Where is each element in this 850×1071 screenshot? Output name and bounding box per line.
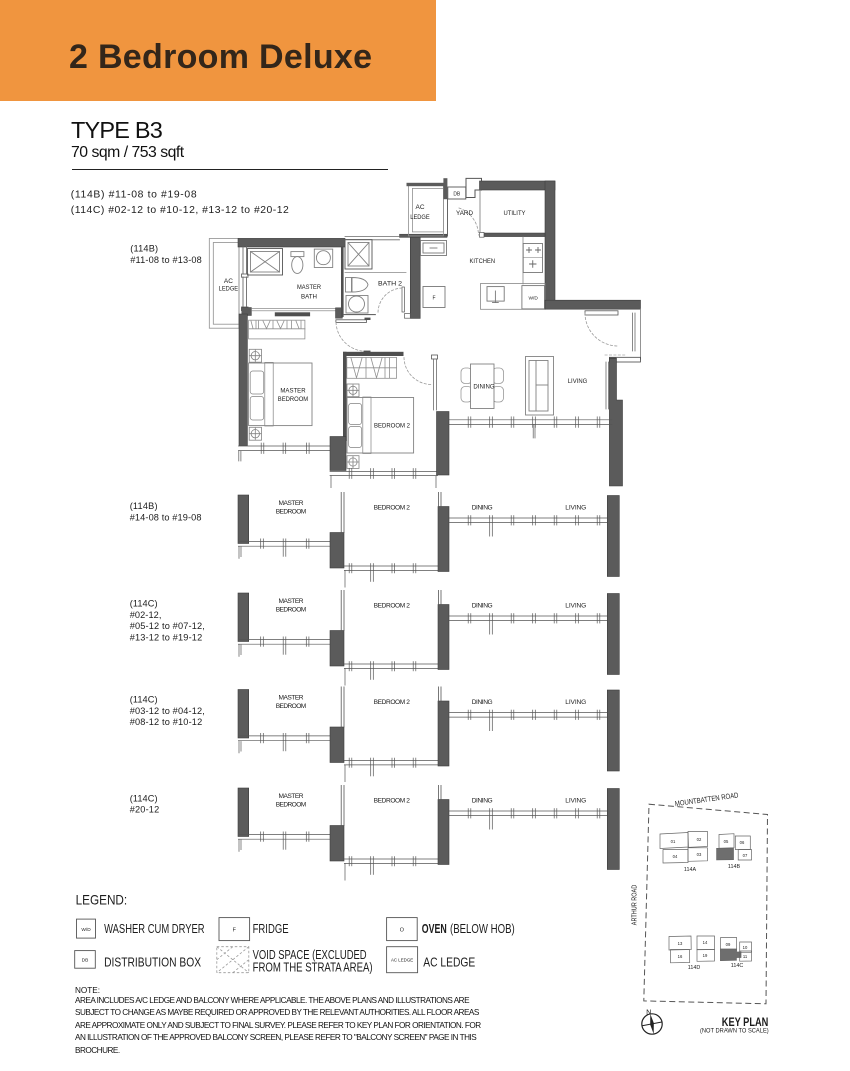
svg-text:DINING: DINING <box>473 383 494 390</box>
svg-text:OVEN: OVEN <box>422 922 447 936</box>
svg-text:#20-12: #20-12 <box>130 805 160 815</box>
svg-text:AC: AC <box>224 278 233 285</box>
svg-text:02: 02 <box>697 837 702 842</box>
svg-text:F: F <box>233 928 237 934</box>
svg-text:MASTER: MASTER <box>297 284 321 291</box>
svg-text:(114B): (114B) <box>130 244 158 254</box>
svg-text:(114C) #02-12 to #10-12, #13-1: (114C) #02-12 to #10-12, #13-12 to #20-1… <box>71 205 289 216</box>
svg-text:#02-12,: #02-12, <box>130 610 162 620</box>
svg-text:AC: AC <box>416 204 425 211</box>
svg-text:#08-12 to #10-12: #08-12 to #10-12 <box>130 717 203 727</box>
svg-text:#14-08 to #19-08: #14-08 to #19-08 <box>130 513 202 523</box>
svg-text:O: O <box>400 928 404 934</box>
svg-text:(114B) #11-08 to #19-08: (114B) #11-08 to #19-08 <box>71 190 197 201</box>
svg-text:MASTER: MASTER <box>280 388 305 395</box>
svg-text:11: 11 <box>743 954 748 959</box>
svg-text:#05-12 to #07-12,: #05-12 to #07-12, <box>130 621 205 631</box>
svg-text:(114C): (114C) <box>130 599 158 609</box>
svg-text:01: 01 <box>671 839 676 844</box>
svg-text:F: F <box>432 296 435 302</box>
svg-text:UTILITY: UTILITY <box>504 210 526 217</box>
svg-text:07: 07 <box>743 853 748 858</box>
svg-text:BEDROOM: BEDROOM <box>278 396 309 403</box>
svg-text:LEGEND:: LEGEND: <box>76 893 128 908</box>
svg-text:AC LEDGE: AC LEDGE <box>391 958 413 963</box>
svg-text:03: 03 <box>697 852 702 857</box>
svg-text:114A: 114A <box>684 867 697 873</box>
svg-text:W/D: W/D <box>529 296 539 302</box>
svg-text:MOUNTBATTEN ROAD: MOUNTBATTEN ROAD <box>674 790 739 808</box>
svg-text:114B: 114B <box>728 864 741 870</box>
svg-text:05: 05 <box>724 839 729 844</box>
svg-text:(114C): (114C) <box>130 695 158 705</box>
svg-text:#11-08 to #13-08: #11-08 to #13-08 <box>130 255 202 265</box>
svg-text:FRIDGE: FRIDGE <box>253 922 289 936</box>
svg-text:AC LEDGE: AC LEDGE <box>423 956 475 970</box>
svg-text:(114C): (114C) <box>130 793 158 803</box>
svg-text:16: 16 <box>678 954 683 959</box>
svg-text:BATH: BATH <box>301 294 317 301</box>
svg-text:(BELOW HOB): (BELOW HOB) <box>450 922 515 936</box>
svg-text:10: 10 <box>743 945 748 950</box>
svg-text:#13-12 to #19-12: #13-12 to #19-12 <box>130 632 203 642</box>
svg-text:114D: 114D <box>688 965 701 971</box>
svg-text:LEDGE: LEDGE <box>410 214 430 221</box>
svg-text:BEDROOM 2: BEDROOM 2 <box>374 423 410 430</box>
svg-text:KITCHEN: KITCHEN <box>470 258 496 265</box>
svg-text:LEDGE: LEDGE <box>219 286 239 293</box>
svg-text:04: 04 <box>673 854 678 859</box>
svg-text:114C: 114C <box>731 963 744 969</box>
svg-text:(NOT DRAWN TO SCALE): (NOT DRAWN TO SCALE) <box>700 1027 769 1034</box>
svg-text:09: 09 <box>726 942 731 947</box>
svg-text:06: 06 <box>740 840 745 845</box>
svg-text:FROM THE STRATA AREA): FROM THE STRATA AREA) <box>253 960 373 974</box>
svg-text:19: 19 <box>703 953 708 958</box>
svg-text:YARD: YARD <box>456 210 473 217</box>
svg-text:WASHER CUM DRYER: WASHER CUM DRYER <box>104 922 205 936</box>
svg-text:LIVING: LIVING <box>568 378 588 385</box>
svg-text:14: 14 <box>703 940 708 945</box>
svg-text:DISTRIBUTION BOX: DISTRIBUTION BOX <box>104 956 201 970</box>
svg-text:W/D: W/D <box>81 927 91 933</box>
svg-text:ARTHUR ROAD: ARTHUR ROAD <box>630 885 639 925</box>
svg-text:13: 13 <box>678 941 683 946</box>
svg-text:DB: DB <box>453 191 461 197</box>
svg-text:DB: DB <box>82 958 89 964</box>
svg-text:(114B): (114B) <box>130 501 158 511</box>
svg-text:#03-12 to #04-12,: #03-12 to #04-12, <box>130 706 205 716</box>
svg-text:BATH 2: BATH 2 <box>378 281 402 288</box>
